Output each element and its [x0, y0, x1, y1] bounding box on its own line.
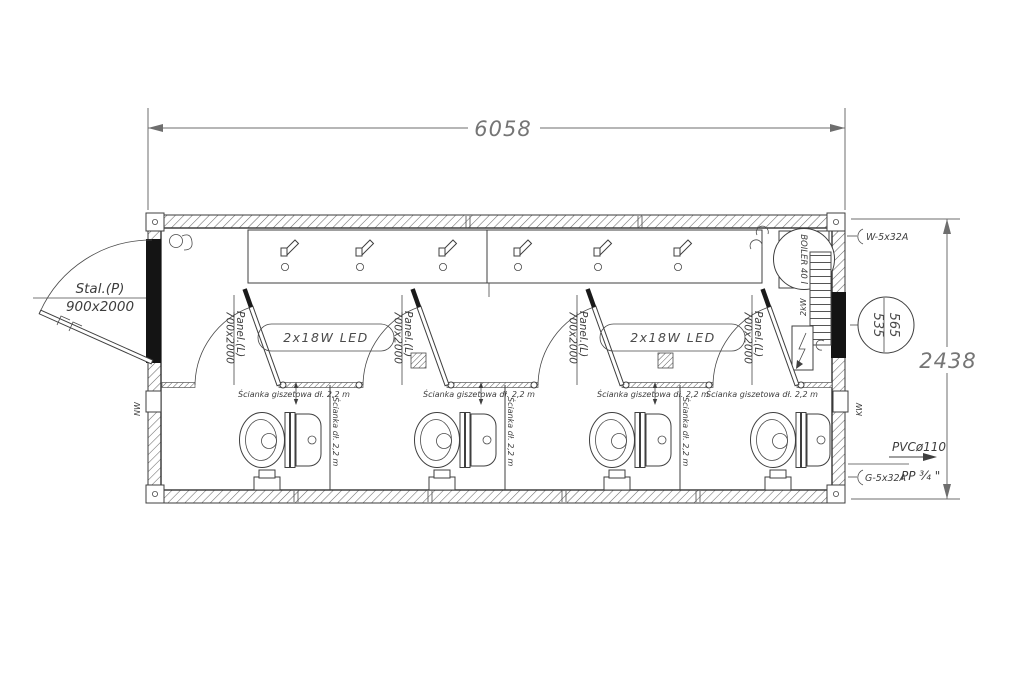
- toilet-4: [751, 413, 831, 468]
- led-light-label: 2x18W LED: [283, 330, 369, 345]
- led-light-label: 2x18W LED: [630, 330, 716, 345]
- side-partition-label: Ścianka dł. 2,2 m: [681, 397, 692, 466]
- floor-plan-drawing: 6058 2438: [0, 0, 1024, 683]
- entrance-door-leaf: [39, 310, 153, 364]
- stall-door-3: Panel.(L) 700x2000: [538, 289, 624, 386]
- floor-plan-page: 6058 2438: [0, 0, 1024, 683]
- electrical-connection-label: W-5x32A: [866, 232, 908, 243]
- width-dimension-text: 6058: [474, 117, 531, 141]
- vent-right: KW: [833, 391, 864, 416]
- water-pipe-label: PP ¾ ": [901, 469, 940, 483]
- window-opening: [831, 292, 846, 358]
- floor-drain-2: [429, 470, 455, 490]
- tap-icon: [674, 240, 692, 271]
- connection-water: G-5x32A PP ¾ ": [848, 469, 940, 485]
- connection-sewage: PVCø110: [848, 440, 946, 464]
- stall-door-size-label: 700x2000: [567, 311, 579, 364]
- toilet-2: [415, 413, 497, 468]
- wall-fixture: [170, 235, 193, 251]
- stall-door-size-label: 700x2000: [224, 311, 236, 364]
- side-partition-label: Ścianka dł. 2,2 m: [506, 397, 517, 466]
- stall-door-size-label: 700x2000: [392, 311, 404, 364]
- window-marker: 565 535: [850, 297, 914, 353]
- front-partition-label: Ścianka giszetowa dł. 2,2 m: [423, 388, 535, 399]
- stall-door-size-label: 700x2000: [742, 311, 754, 364]
- floor-drain-3: [604, 470, 630, 490]
- sewage-pipe-label: PVCø110: [892, 440, 946, 454]
- washbasin-counter: [248, 230, 762, 297]
- partition-posts: [280, 382, 804, 388]
- electrical-panel-icon: [792, 326, 813, 370]
- height-dimension-text: 2438: [919, 349, 976, 373]
- connection-electrical: W-5x32A: [847, 229, 908, 244]
- entrance-door-type-label: Stal.(P): [76, 281, 125, 297]
- tap-icon: [594, 240, 612, 271]
- floor-drain-4: [765, 470, 791, 490]
- stall-door-2: Panel.(L) 700x2000: [363, 289, 449, 386]
- fan-valve-icon: [658, 353, 673, 368]
- boiler-label: BOILER 40 l: [798, 234, 808, 284]
- tap-icon: [439, 240, 457, 271]
- led-light-2: 2x18W LED: [600, 324, 745, 351]
- tap-icon: [356, 240, 374, 271]
- stall-door-1: Panel.(L) 700x2000: [195, 289, 281, 386]
- fan-valve-icon: [411, 353, 426, 368]
- vent-left: NW: [133, 391, 161, 416]
- front-partition-label: Ścianka giszetowa dł. 2,2 m: [597, 388, 709, 399]
- floor-drain-1: [254, 470, 280, 490]
- dimension-width: 6058: [148, 108, 845, 210]
- vent-right-label: KW: [855, 402, 864, 416]
- water-connection-label: G-5x32A: [865, 473, 906, 484]
- heater-power-label: 2kW: [799, 297, 808, 316]
- toilet-3: [590, 413, 672, 468]
- entrance-door: Stal.(P) 900x2000: [33, 239, 161, 364]
- window-width-label: 565: [886, 313, 901, 338]
- tap-icon: [514, 240, 532, 271]
- toilet-1: [240, 413, 322, 468]
- tap-icons: [281, 240, 692, 271]
- entrance-door-size-label: 900x2000: [66, 299, 134, 315]
- front-partition-wall: Ścianka giszetowa dł. 2,2 m Ścianka gisz…: [162, 382, 832, 405]
- window-height-label: 535: [870, 313, 885, 338]
- side-partition-label: Ścianka dł. 2,2 m: [331, 397, 342, 466]
- led-light-1: 2x18W LED: [258, 324, 394, 351]
- tap-icon: [281, 240, 299, 271]
- front-partition-label: Ścianka giszetowa dł. 2,2 m: [706, 388, 818, 399]
- stall-door-4: Panel.(L) 700x2000: [713, 289, 799, 386]
- vent-left-label: NW: [133, 401, 142, 416]
